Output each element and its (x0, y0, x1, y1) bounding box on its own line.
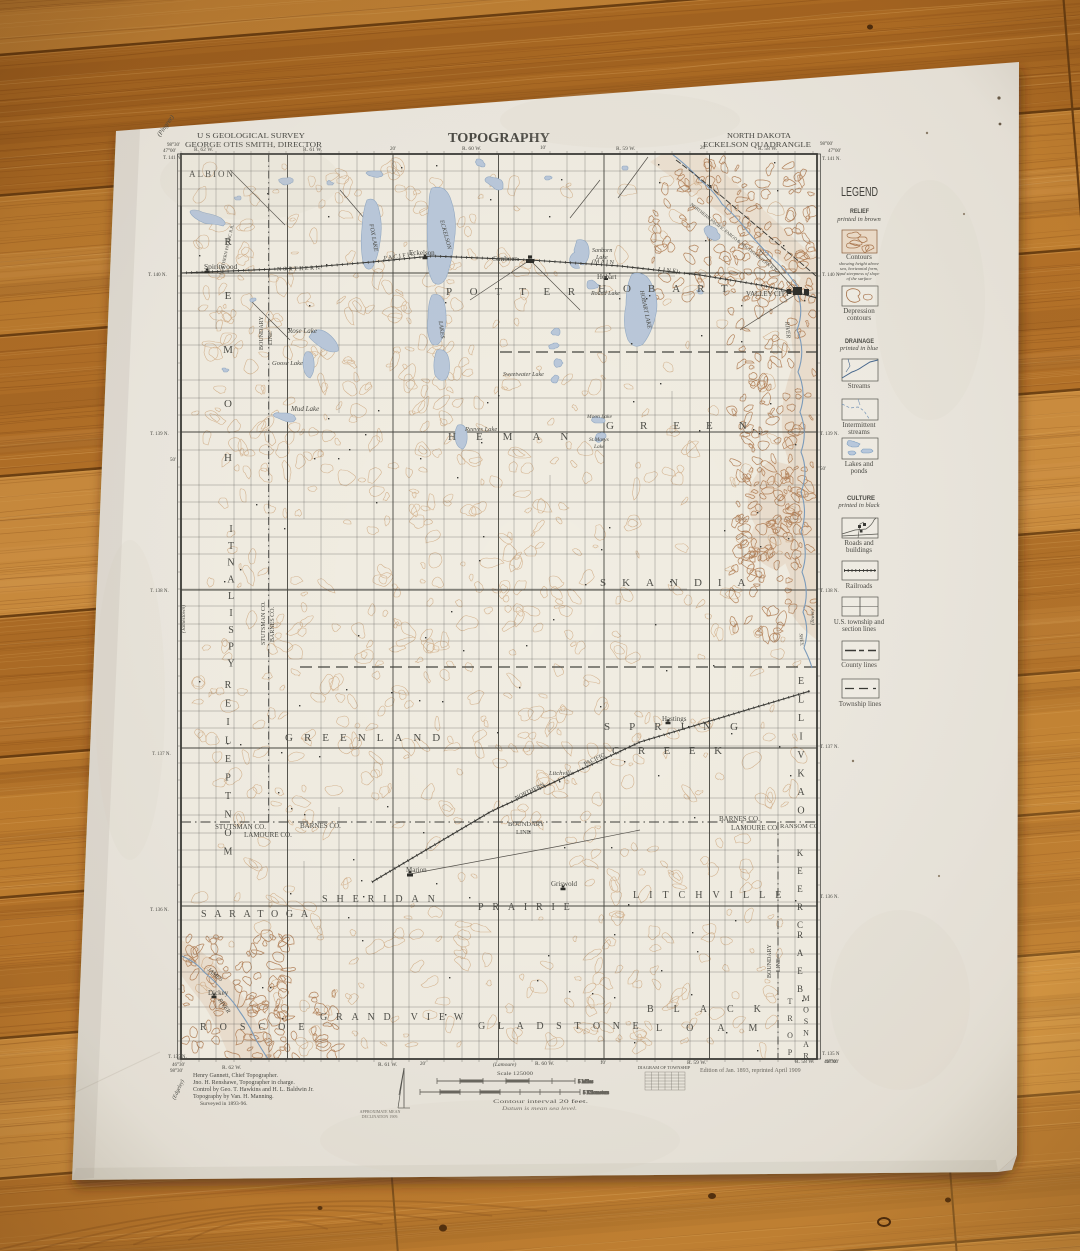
svg-text:47°00': 47°00' (828, 149, 841, 154)
svg-text:SHERIDAN: SHERIDAN (322, 894, 444, 905)
svg-text:N: N (224, 810, 231, 821)
svg-text:98°30': 98°30' (170, 1069, 183, 1074)
svg-text:SARATOGA: SARATOGA (201, 909, 316, 920)
svg-text:Henry Gannett, Chief Topograph: Henry Gannett, Chief Topographer. (193, 1072, 278, 1079)
svg-text:T: T (228, 541, 234, 552)
svg-text:R. 60 W.: R. 60 W. (535, 1061, 555, 1067)
svg-text:STUTSMAN CO.: STUTSMAN CO. (215, 823, 266, 831)
svg-text:O: O (787, 1031, 793, 1040)
svg-text:U.S. township and: U.S. township and (834, 619, 885, 626)
svg-text:L: L (798, 695, 804, 706)
svg-text:E: E (797, 966, 803, 976)
svg-text:RANSOM CO.: RANSOM CO. (780, 823, 820, 830)
svg-text:section lines: section lines (842, 626, 876, 633)
svg-text:O: O (803, 1006, 809, 1015)
svg-text:County lines: County lines (841, 661, 877, 669)
svg-text:O: O (224, 398, 232, 410)
svg-text:R: R (225, 680, 232, 691)
svg-text:A: A (803, 1040, 809, 1049)
svg-text:St.Marys: St.Marys (589, 437, 609, 443)
svg-text:R. 62 W.: R. 62 W. (222, 1065, 242, 1071)
svg-text:50': 50' (170, 458, 176, 463)
svg-text:Scale 125000: Scale 125000 (497, 1071, 533, 1077)
svg-text:C: C (797, 920, 803, 930)
svg-text:GLADSTONE: GLADSTONE (478, 1021, 651, 1032)
svg-text:printed in brown: printed in brown (836, 216, 880, 223)
svg-text:20': 20' (700, 146, 706, 151)
svg-text:A: A (797, 787, 805, 798)
svg-text:M: M (224, 847, 233, 858)
svg-text:Goose Lake: Goose Lake (272, 360, 303, 367)
svg-text:Hobart: Hobart (597, 273, 616, 281)
svg-text:E: E (797, 866, 803, 876)
svg-text:P: P (225, 773, 231, 784)
svg-text:T. 136 N.: T. 136 N. (820, 895, 839, 900)
svg-text:T: T (788, 997, 793, 1006)
svg-text:printed in blue: printed in blue (839, 345, 878, 352)
svg-text:Marion: Marion (406, 866, 427, 874)
svg-text:Streams: Streams (848, 382, 871, 390)
svg-text:N: N (227, 558, 234, 569)
svg-text:Dickey: Dickey (208, 989, 229, 997)
svg-text:L: L (225, 736, 231, 747)
svg-text:A: A (227, 574, 235, 585)
svg-text:Sweetwater Lake: Sweetwater Lake (503, 372, 544, 378)
svg-text:SKANDIA: SKANDIA (600, 577, 762, 589)
svg-text:R: R (797, 902, 803, 912)
svg-text:(Tower): (Tower) (811, 609, 816, 625)
svg-text:Surveyed in 1893-96.: Surveyed in 1893-96. (200, 1101, 248, 1107)
svg-text:GREEN: GREEN (606, 420, 773, 432)
svg-text:ROSCOE: ROSCOE (200, 1022, 317, 1033)
svg-text:50': 50' (820, 467, 826, 472)
svg-text:(Jamestown): (Jamestown) (180, 605, 187, 633)
svg-text:O: O (797, 806, 804, 817)
svg-text:of the surface: of the surface (846, 276, 871, 281)
svg-text:T. 138 N.: T. 138 N. (820, 589, 839, 594)
svg-text:(Lamoure): (Lamoure) (493, 1061, 516, 1068)
svg-text:L: L (228, 591, 234, 602)
svg-text:Lake: Lake (595, 255, 608, 261)
svg-text:E: E (225, 754, 231, 765)
svg-text:I: I (229, 524, 232, 535)
svg-text:ponds: ponds (851, 467, 868, 475)
svg-text:contours: contours (847, 314, 871, 322)
svg-text:Reeves Lake: Reeves Lake (464, 426, 497, 433)
svg-text:E: E (798, 676, 804, 687)
svg-text:46°30': 46°30' (172, 1063, 185, 1068)
svg-text:LITCHVILLE: LITCHVILLE (633, 890, 791, 901)
svg-text:N: N (803, 1029, 809, 1038)
svg-text:LINE: LINE (516, 829, 531, 836)
svg-text:S: S (804, 1017, 808, 1026)
svg-text:10': 10' (600, 1061, 606, 1066)
svg-text:P: P (788, 1048, 793, 1057)
svg-text:H: H (224, 452, 232, 464)
svg-text:CULTURE: CULTURE (847, 495, 876, 502)
svg-text:E: E (797, 884, 803, 894)
svg-text:K: K (797, 769, 805, 780)
svg-text:Y: Y (227, 658, 234, 669)
svg-text:T. 137 N.: T. 137 N. (820, 745, 839, 750)
svg-text:NORTH DAKOTA: NORTH DAKOTA (727, 131, 792, 140)
svg-text:LOAM: LOAM (656, 1023, 781, 1034)
svg-text:RELIEF: RELIEF (850, 208, 869, 215)
svg-text:GRAND VIEW: GRAND VIEW (320, 1012, 472, 1023)
svg-text:L: L (798, 713, 804, 724)
svg-text:T. 139 N.: T. 139 N. (150, 432, 169, 437)
svg-text:98°30': 98°30' (167, 143, 180, 148)
svg-text:M: M (802, 994, 809, 1003)
svg-text:LINE: LINE (776, 958, 782, 972)
svg-text:Control by Geo. T. Hawkins and: Control by Geo. T. Hawkins and H. L. Bal… (193, 1087, 314, 1093)
svg-text:BOUNDARY: BOUNDARY (767, 944, 773, 978)
svg-text:47°00': 47°00' (163, 149, 176, 154)
svg-text:VALLEY CITY: VALLEY CITY (746, 290, 790, 298)
svg-text:5 Kilometers: 5 Kilometers (583, 1091, 609, 1096)
svg-text:buildings: buildings (846, 546, 872, 554)
svg-text:Round Lake: Round Lake (590, 291, 620, 297)
svg-text:Topography by Van. H. Manning.: Topography by Van. H. Manning. (193, 1094, 274, 1100)
svg-text:BOUNDARY: BOUNDARY (508, 821, 545, 828)
svg-text:LAMOURE CO.: LAMOURE CO. (244, 831, 292, 839)
svg-text:98°00': 98°00' (826, 1060, 839, 1065)
svg-text:Township lines: Township lines (839, 700, 882, 708)
svg-text:GREENLAND: GREENLAND (285, 732, 451, 744)
svg-text:Griswold: Griswold (551, 880, 578, 888)
svg-text:Moon Lake: Moon Lake (586, 414, 612, 420)
svg-text:R. 58 W.: R. 58 W. (758, 146, 778, 152)
svg-text:Hastings: Hastings (662, 715, 687, 723)
svg-text:Mud Lake: Mud Lake (290, 405, 319, 413)
svg-text:M: M (223, 344, 233, 356)
svg-text:Lake: Lake (593, 444, 605, 450)
svg-text:LEGEND: LEGEND (841, 184, 878, 199)
svg-text:I: I (799, 732, 802, 743)
svg-text:Jno. H. Renshawe, Topographer: Jno. H. Renshawe, Topographer in charge. (193, 1080, 295, 1086)
svg-text:10': 10' (540, 146, 546, 151)
svg-text:R. 61 W.: R. 61 W. (378, 1062, 398, 1068)
svg-text:E: E (225, 290, 232, 302)
svg-text:T. 139 N.: T. 139 N. (820, 432, 839, 437)
svg-text:Sanborn: Sanborn (493, 254, 518, 263)
svg-text:20': 20' (420, 1062, 426, 1067)
svg-text:BARNES CO.: BARNES CO. (719, 815, 760, 823)
svg-text:I: I (229, 608, 232, 619)
svg-text:P: P (228, 642, 234, 653)
svg-text:R: R (787, 1014, 793, 1023)
svg-text:BLACK: BLACK (647, 1004, 781, 1015)
svg-text:5 Miles: 5 Miles (578, 1080, 593, 1085)
svg-text:LINE: LINE (268, 331, 274, 345)
svg-text:Contours: Contours (846, 253, 872, 261)
svg-text:T. 135 N: T. 135 N (822, 1052, 840, 1057)
svg-text:Rose Lake: Rose Lake (287, 327, 317, 335)
svg-text:S: S (228, 625, 234, 636)
svg-text:T. 135 N.: T. 135 N. (168, 1055, 187, 1060)
svg-text:Sanborn: Sanborn (592, 248, 612, 254)
svg-text:R. 58 W.: R. 58 W. (795, 1059, 815, 1065)
svg-text:A: A (797, 948, 804, 958)
svg-text:K: K (797, 848, 804, 858)
svg-text:20': 20' (390, 147, 396, 152)
svg-text:PRAIRIE: PRAIRIE (478, 902, 579, 913)
svg-text:V: V (797, 750, 805, 761)
svg-text:HOBART: HOBART (598, 283, 745, 295)
svg-text:LAMOURE CO.: LAMOURE CO. (731, 824, 779, 832)
svg-text:printed in black: printed in black (837, 502, 879, 509)
svg-text:U S GEOLOGICAL SURVEY: U S GEOLOGICAL SURVEY (197, 131, 306, 140)
svg-text:T: T (225, 791, 231, 802)
svg-text:BARNES CO.: BARNES CO. (270, 606, 276, 642)
svg-text:Litchville: Litchville (548, 770, 574, 777)
svg-text:DRAINAGE: DRAINAGE (845, 338, 875, 345)
svg-text:Edition of Jan. 1893, reprinte: Edition of Jan. 1893, reprinted April 19… (700, 1067, 801, 1074)
svg-text:streams: streams (848, 428, 870, 436)
svg-text:T. 141 N.: T. 141 N. (822, 157, 841, 162)
svg-text:Railroads: Railroads (846, 582, 873, 590)
svg-text:CREEK: CREEK (612, 745, 741, 757)
svg-text:POTTER: POTTER (446, 286, 593, 298)
svg-text:BARNES CO.: BARNES CO. (300, 822, 341, 830)
svg-text:STUTSMAN CO.: STUTSMAN CO. (261, 601, 267, 645)
svg-text:I: I (226, 717, 229, 728)
svg-text:98°00': 98°00' (820, 142, 833, 147)
svg-text:BOUNDARY: BOUNDARY (259, 316, 265, 350)
svg-text:R. 60 W.: R. 60 W. (462, 146, 482, 152)
svg-text:T. 136 N.: T. 136 N. (150, 908, 169, 913)
svg-text:B: B (797, 984, 803, 994)
svg-text:DIAGRAM OF TOWNSHIP: DIAGRAM OF TOWNSHIP (638, 1065, 691, 1070)
svg-text:R: R (797, 930, 803, 940)
svg-text:E: E (225, 699, 231, 710)
svg-text:T. 140 N.: T. 140 N. (148, 273, 167, 278)
